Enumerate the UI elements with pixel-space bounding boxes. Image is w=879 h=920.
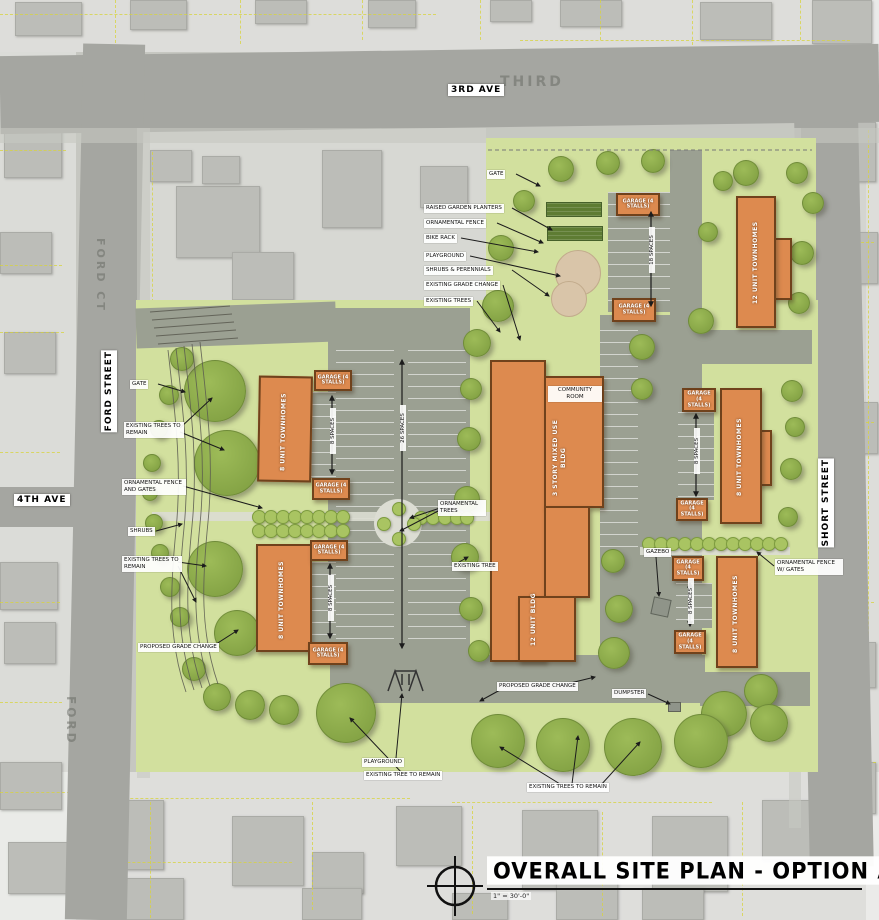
garage-label: GARAGE (4 STALLS) [310, 648, 346, 660]
parcel-line [312, 802, 313, 910]
parcel-line [362, 0, 363, 40]
tree [750, 704, 788, 742]
tree [316, 683, 376, 743]
aerial-house [4, 622, 56, 664]
tree [786, 162, 808, 184]
title-underline [487, 888, 862, 890]
callout-raised-garden-planters: RAISED GARDEN PLANTERS [424, 204, 504, 213]
tree [733, 160, 759, 186]
garage-west-2: GARAGE (4 STALLS) [312, 478, 350, 500]
parcel-line [150, 802, 151, 918]
building-west-upper: 8 UNIT TOWNHOMES [257, 376, 313, 483]
tree [781, 380, 803, 402]
aerial-house [420, 166, 468, 208]
aerial-house [4, 332, 56, 374]
aerial-house [130, 0, 187, 30]
tree [182, 657, 206, 681]
parcel-line [115, 0, 116, 48]
building-label: 8 UNIT TOWNHOMES [279, 392, 288, 472]
tree [790, 241, 814, 265]
callout-gate-west: GATE [130, 380, 148, 389]
tree [143, 454, 161, 472]
parcel-line [600, 0, 601, 40]
street-label-3rd-ave: 3RD AVE [448, 84, 504, 96]
garage-east-4: GARAGE (4 STALLS) [674, 630, 706, 654]
callout-playground: PLAYGROUND [424, 252, 466, 261]
parcel-line [0, 14, 436, 15]
tree [802, 192, 824, 214]
street-label-third-faint: THIRD [500, 74, 564, 90]
street-label-ford-street: FORD STREET [101, 350, 117, 432]
tree [457, 427, 481, 451]
parcel-line [0, 452, 60, 453]
aerial-house [490, 0, 532, 22]
sheet-title: OVERALL SITE PLAN - OPTION A [487, 856, 879, 884]
aerial-house [700, 2, 772, 40]
callout-existing-tree: EXISTING TREE [452, 562, 498, 571]
garage-label: GARAGE (4 STALLS) [314, 483, 348, 495]
parcel-line [0, 792, 70, 793]
callout-shrubs-perennials: SHRUBS & PERENNIALS [424, 266, 493, 275]
callout-ornamental-fence-gates: ORNAMENTAL FENCE AND GATES [122, 479, 186, 495]
parking-count-label: 8 SPACES [694, 428, 700, 474]
garage-label: GARAGE (4 STALLS) [316, 375, 350, 387]
parking-stalls [600, 330, 638, 555]
aerial-house [0, 762, 62, 810]
aerial-house [232, 252, 294, 300]
parcel-line [472, 806, 473, 914]
parking-count-label: 8 SPACES [688, 578, 694, 624]
tree [184, 360, 246, 422]
tree [235, 690, 265, 720]
tree [688, 308, 714, 334]
aerial-house [150, 150, 192, 182]
tree [605, 595, 633, 623]
parking-count-label: 8 SPACES [330, 408, 336, 454]
callout-gate: GATE [487, 170, 505, 179]
callout-ornamental-fence-gates-east: ORNAMENTAL FENCE W/ GATES [775, 559, 843, 575]
callout-proposed-grade-change: PROPOSED GRADE CHANGE [138, 643, 219, 652]
tree [160, 577, 180, 597]
tree [214, 610, 260, 656]
street-label-4th-ave: 4TH AVE [14, 494, 70, 506]
drive-nw-entry [135, 302, 336, 349]
tree [170, 347, 194, 371]
callout-ornamental-fence: ORNAMENTAL FENCE [424, 219, 486, 228]
callout-existing-trees-remain: EXISTING TREES TO REMAIN [122, 556, 182, 572]
callout-existing-trees: EXISTING TREES [424, 297, 473, 306]
parcel-line [0, 602, 60, 603]
aerial-house [255, 0, 307, 24]
street-label-ford-ct-faint: FORD CT [94, 238, 107, 313]
tree [536, 718, 590, 772]
aerial-house [0, 232, 52, 274]
tree [674, 714, 728, 768]
callout-playground-south: PLAYGROUND [362, 758, 404, 767]
callout-bike-rack: BIKE RACK [424, 234, 457, 243]
garage-east-2: GARAGE (4 STALLS) [676, 498, 708, 521]
tree [468, 640, 490, 662]
ornamental-tree [377, 517, 391, 531]
raised-garden-planter [546, 202, 602, 217]
callout-dumpster: DUMPSTER [612, 689, 646, 698]
parcel-line [0, 702, 62, 703]
callout-existing-trees-remain-south: EXISTING TREES TO REMAIN [527, 783, 609, 792]
ornamental-tree [407, 517, 421, 531]
garage-northeast-1: GARAGE (4 STALLS) [616, 193, 660, 216]
tree [641, 149, 665, 173]
garage-west-3: GARAGE (4 STALLS) [310, 540, 348, 561]
building-east-lower: 8 UNIT TOWNHOMES [716, 556, 758, 668]
callout-existing-grade-change: EXISTING GRADE CHANGE [424, 281, 500, 290]
tree [170, 607, 190, 627]
aerial-house [302, 888, 362, 920]
tree [159, 385, 179, 405]
garage-west-4: GARAGE (4 STALLS) [308, 642, 348, 665]
garage-label: GARAGE (4 STALLS) [614, 304, 654, 316]
parcel-line [80, 798, 410, 799]
tree [482, 290, 514, 322]
parcel-line [452, 802, 712, 803]
tree [744, 674, 778, 708]
tree [203, 683, 231, 711]
parcel-line [240, 0, 241, 44]
tree [631, 378, 653, 400]
parking-count-label: 8 SPACES [328, 575, 334, 621]
building-central-south [518, 596, 576, 662]
street-label-ford-faint: FORD [64, 696, 78, 746]
parcel-line [692, 0, 693, 45]
aerial-house [560, 0, 622, 27]
parcel-line [520, 40, 850, 41]
callout-existing-trees-remain: EXISTING TREES TO REMAIN [124, 422, 184, 438]
ornamental-tree [774, 537, 788, 551]
building-label: 3 STORY MIXED USE BLDG [552, 412, 568, 504]
ornamental-tree [392, 532, 406, 546]
tree [780, 458, 802, 480]
callout-proposed-grade-change-south: PROPOSED GRADE CHANGE [497, 682, 578, 691]
building-label: 8 UNIT TOWNHOMES [732, 574, 740, 654]
gazebo [650, 596, 671, 617]
building-label: 12 UNIT TOWNHOMES [752, 218, 760, 308]
callout-ornamental-trees: ORNAMENTAL TREES [438, 500, 486, 516]
parcel-line [0, 150, 66, 151]
tree [629, 334, 655, 360]
parcel-line [152, 152, 153, 302]
playground-area [551, 281, 587, 317]
parking-east-lower [676, 583, 712, 628]
garage-west-1: GARAGE (4 STALLS) [314, 370, 352, 391]
aerial-house [642, 888, 704, 920]
tree [778, 507, 798, 527]
parcel-line [0, 332, 64, 333]
tree [463, 329, 491, 357]
garage-label: GARAGE (4 STALLS) [674, 560, 702, 577]
ornamental-tree [336, 524, 350, 538]
aerial-house [232, 816, 304, 886]
garage-northeast-2: GARAGE (4 STALLS) [612, 298, 656, 322]
road-4th-ave [0, 487, 76, 527]
tree [513, 190, 535, 212]
building-label: 8 UNIT TOWNHOMES [278, 560, 286, 640]
garage-east-1: GARAGE (4 STALLS) [682, 388, 716, 412]
building-east-upper: 8 UNIT TOWNHOMES [720, 388, 762, 524]
drive-east-entry [700, 330, 812, 364]
tree [785, 417, 805, 437]
drive-south [330, 655, 705, 703]
building-central-east [544, 506, 590, 598]
callout-gazebo: GAZEBO [644, 548, 671, 557]
callout-shrubs: SHRUBS [128, 527, 155, 536]
parking-count-label: 18 SPACES [649, 227, 655, 273]
garage-label: GARAGE (4 STALLS) [684, 391, 714, 408]
tree [187, 541, 243, 597]
ornamental-tree [336, 510, 350, 524]
aerial-house [15, 2, 82, 36]
tree [194, 430, 260, 496]
tree [596, 151, 620, 175]
garage-label: GARAGE (4 STALLS) [678, 501, 706, 518]
aerial-house [202, 156, 240, 184]
tree [459, 597, 483, 621]
building-west-lower: 8 UNIT TOWNHOMES [256, 544, 312, 652]
parcel-line [480, 0, 481, 40]
dumpster [668, 702, 681, 712]
aerial-house [176, 186, 260, 258]
tree [598, 637, 630, 669]
tree [460, 378, 482, 400]
title-block: OVERALL SITE PLAN - OPTION A [487, 857, 879, 884]
parcel-line [800, 0, 801, 40]
community-room-label: COMMUNITY ROOM [548, 386, 602, 402]
tree [269, 695, 299, 725]
building-label: 8 UNIT TOWNHOMES [736, 410, 744, 505]
callout-existing-tree-remain: EXISTING TREE TO REMAIN [364, 771, 442, 780]
tree [713, 171, 733, 191]
raised-garden-planter [547, 226, 603, 241]
tree [698, 222, 718, 242]
aerial-house [812, 0, 872, 44]
aerial-house [396, 806, 462, 866]
tree [471, 714, 525, 768]
parking-count-label: 26 SPACES [400, 405, 406, 451]
building-label: 12 UNIT BLDG [530, 580, 538, 658]
aerial-house [8, 842, 72, 894]
site-plan-scene: 12 UNIT TOWNHOMES GARAGE (4 STALLS) GARA… [0, 0, 879, 920]
garage-label: GARAGE (4 STALLS) [676, 633, 704, 650]
scale-note: 1" = 30'-0" [491, 892, 531, 900]
street-label-short-street: SHORT STREET [818, 458, 834, 547]
aerial-house [322, 150, 382, 228]
parking-stalls [336, 350, 394, 650]
garage-label: GARAGE (4 STALLS) [618, 199, 658, 211]
tree [604, 718, 662, 776]
tree [488, 235, 514, 261]
tree [548, 156, 574, 182]
garage-label: GARAGE (4 STALLS) [312, 545, 346, 557]
building-northeast: 12 UNIT TOWNHOMES [736, 196, 776, 328]
ornamental-tree [392, 502, 406, 516]
tree [601, 549, 625, 573]
parcel-line [0, 265, 62, 266]
